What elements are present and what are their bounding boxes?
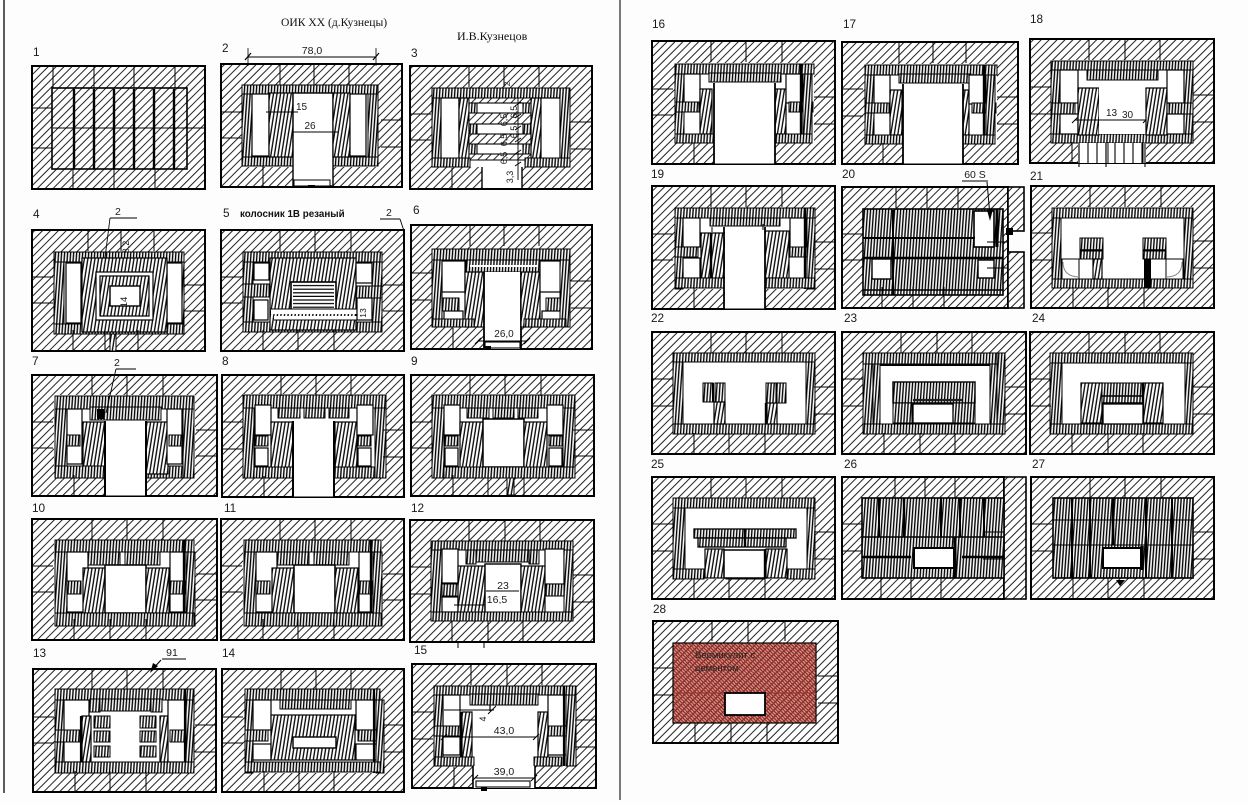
svg-text:30: 30: [1122, 110, 1134, 121]
svg-text:6,5: 6,5: [509, 106, 519, 119]
svg-text:13: 13: [33, 646, 47, 660]
svg-text:17: 17: [843, 17, 856, 31]
svg-text:1: 1: [33, 45, 40, 59]
svg-text:5: 5: [223, 206, 230, 220]
svg-text:4: 4: [478, 716, 488, 721]
svg-text:ОИК ХХ (д.Кузнецы): ОИК ХХ (д.Кузнецы): [281, 16, 387, 29]
svg-text:3,2: 3,2: [121, 241, 131, 254]
svg-text:колосник 1В резаный: колосник 1В резаный: [240, 209, 345, 220]
svg-text:26,0: 26,0: [494, 329, 514, 340]
svg-text:15: 15: [296, 102, 308, 113]
svg-text:6,5: 6,5: [499, 114, 509, 127]
svg-text:20: 20: [842, 167, 856, 181]
svg-text:6,5: 6,5: [509, 126, 519, 139]
svg-text:25: 25: [651, 457, 665, 471]
svg-text:3,3: 3,3: [505, 171, 515, 184]
svg-text:78,0: 78,0: [302, 45, 323, 57]
svg-text:12: 12: [411, 501, 424, 515]
svg-text:18: 18: [1030, 12, 1044, 26]
svg-text:14: 14: [119, 297, 130, 308]
svg-text:8: 8: [222, 354, 229, 368]
svg-text:27: 27: [1032, 457, 1045, 471]
svg-text:28: 28: [653, 602, 667, 616]
svg-text:6: 6: [413, 203, 420, 217]
svg-text:И.В.Кузнецов: И.В.Кузнецов: [457, 29, 528, 43]
svg-text:14: 14: [222, 646, 236, 660]
svg-text:Вермикулит с: Вермикулит с: [695, 650, 755, 661]
svg-text:7: 7: [32, 354, 39, 368]
svg-text:11: 11: [224, 501, 236, 515]
svg-text:24: 24: [1032, 311, 1046, 325]
svg-text:26: 26: [844, 457, 858, 471]
svg-text:22: 22: [651, 311, 664, 325]
svg-text:9: 9: [411, 354, 418, 368]
svg-text:23: 23: [844, 311, 858, 325]
svg-text:10: 10: [32, 501, 46, 515]
svg-text:6,5: 6,5: [499, 152, 509, 165]
svg-text:13: 13: [358, 308, 368, 318]
svg-text:21: 21: [1030, 169, 1043, 183]
svg-text:91: 91: [166, 647, 178, 659]
svg-text:4: 4: [33, 207, 40, 221]
svg-text:15: 15: [414, 643, 428, 657]
svg-text:26: 26: [304, 121, 316, 132]
svg-text:16: 16: [652, 17, 666, 31]
svg-text:23: 23: [497, 580, 509, 592]
svg-text:2: 2: [386, 207, 392, 219]
svg-text:цементом: цементом: [695, 663, 739, 674]
svg-text:3: 3: [411, 46, 418, 60]
svg-text:2: 2: [115, 206, 121, 218]
svg-text:39,0: 39,0: [494, 766, 515, 778]
svg-text:60 S: 60 S: [964, 169, 986, 181]
svg-text:13: 13: [1106, 108, 1118, 119]
svg-text:6,5: 6,5: [499, 134, 509, 147]
svg-text:2: 2: [114, 357, 120, 369]
svg-text:19: 19: [651, 167, 664, 181]
svg-text:43,0: 43,0: [494, 725, 515, 737]
svg-text:2: 2: [222, 41, 229, 55]
